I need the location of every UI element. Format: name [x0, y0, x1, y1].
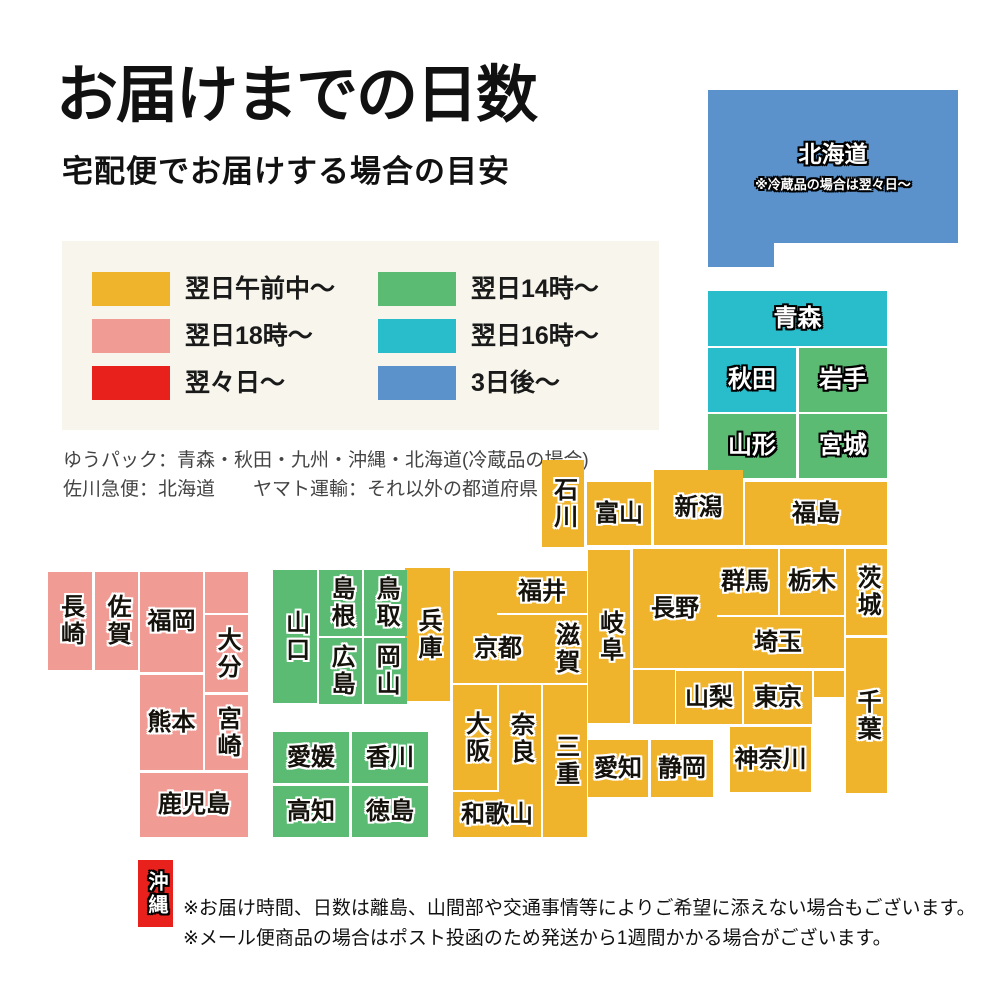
prefecture-label: 石川 [550, 477, 575, 531]
prefecture-label: 三重 [552, 734, 577, 788]
prefecture-label: 長崎 [57, 594, 82, 648]
prefecture-ehime: 愛媛 [273, 732, 349, 783]
prefecture-tokyo-ext [814, 671, 844, 697]
prefecture-nagasaki: 長崎 [48, 572, 92, 670]
prefecture-kyoto: 京都 [453, 615, 543, 683]
prefecture-note: ※冷蔵品の場合は翌々日〜 [755, 178, 911, 192]
prefecture-label: 宮城 [819, 433, 867, 458]
prefecture-label: 兵庫 [415, 608, 440, 662]
prefecture-nara: 奈良 [499, 685, 541, 793]
prefecture-label: 高知 [287, 799, 335, 824]
prefecture-label: 岩手 [819, 367, 867, 392]
prefecture-wakayama: 和歌山 [453, 792, 541, 837]
prefecture-hokkaido: 北海道※冷蔵品の場合は翌々日〜 [708, 90, 958, 243]
prefecture-fukui: 福井 [497, 571, 587, 613]
prefecture-saga: 佐賀 [95, 572, 138, 670]
japan-map: 北海道※冷蔵品の場合は翌々日〜青森秋田岩手山形宮城福島新潟富山石川群馬栃木茨城埼… [0, 0, 1000, 1000]
prefecture-hiroshima: 広島 [319, 638, 362, 704]
prefecture-gunma: 群馬 [712, 549, 778, 615]
prefecture-label: 神奈川 [735, 747, 807, 772]
prefecture-aichi: 愛知 [588, 740, 648, 797]
prefecture-yamagata: 山形 [708, 414, 796, 478]
prefecture-iwate: 岩手 [799, 348, 887, 412]
prefecture-fukuoka-ext [205, 572, 248, 613]
prefecture-label: 千葉 [854, 689, 879, 743]
prefecture-label: 群馬 [721, 569, 769, 594]
prefecture-kanagawa: 神奈川 [730, 727, 811, 792]
prefecture-label: 和歌山 [461, 802, 533, 827]
prefecture-label: 栃木 [788, 569, 836, 594]
prefecture-label: 青森 [774, 306, 822, 331]
note-mail-service: ※メール便商品の場合はポスト投函のため発送から1週間かかる場合がございます。 [183, 924, 976, 954]
prefecture-okinawa: 沖縄 [138, 860, 173, 927]
prefecture-label: 熊本 [148, 710, 196, 735]
prefecture-label: 京都 [474, 636, 522, 661]
prefecture-tochigi: 栃木 [780, 549, 844, 615]
prefecture-ishikawa: 石川 [542, 460, 584, 547]
prefecture-chiba: 千葉 [846, 638, 887, 793]
prefecture-label: 佐賀 [104, 594, 129, 648]
prefecture-osaka: 大阪 [453, 685, 497, 790]
prefecture-label: 愛媛 [287, 745, 335, 770]
prefecture-label: 沖縄 [145, 871, 166, 917]
prefecture-label: 静岡 [658, 756, 706, 781]
prefecture-label: 福岡 [148, 609, 196, 634]
prefecture-label: 宮崎 [214, 706, 239, 760]
bottom-notes: ※お届け時間、日数は離島、山間部や交通事情等によりご希望に添えない場合もございま… [183, 894, 976, 954]
prefecture-hyogo: 兵庫 [405, 568, 450, 701]
prefecture-label: 福島 [792, 501, 840, 526]
prefecture-miyagi: 宮城 [799, 414, 887, 478]
prefecture-saitama: 埼玉 [712, 617, 844, 668]
note-delivery-time: ※お届け時間、日数は離島、山間部や交通事情等によりご希望に添えない場合もございま… [183, 894, 976, 924]
prefecture-niigata: 新潟 [654, 470, 743, 545]
prefecture-label: 鳥取 [373, 576, 398, 630]
prefecture-label: 秋田 [728, 367, 776, 392]
prefecture-label: 滋賀 [552, 622, 577, 676]
prefecture-yamaguchi: 山口 [273, 570, 317, 703]
prefecture-kyoto-ext [453, 571, 497, 617]
prefecture-label: 山口 [282, 610, 307, 664]
prefecture-okayama: 岡山 [364, 638, 407, 704]
prefecture-shiga: 滋賀 [543, 615, 587, 683]
prefecture-label: 福井 [518, 579, 566, 604]
prefecture-label: 奈良 [507, 712, 532, 766]
prefecture-gifu: 岐阜 [588, 550, 630, 723]
prefecture-label: 山形 [728, 433, 776, 458]
prefecture-shimane: 島根 [319, 570, 362, 636]
prefecture-label: 大阪 [462, 711, 487, 765]
prefecture-fukuoka: 福岡 [140, 572, 203, 672]
prefecture-label: 東京 [754, 685, 802, 710]
prefecture-hokkaido-ext [708, 243, 774, 267]
prefecture-label: 北海道 [799, 142, 868, 166]
prefecture-oita: 大分 [205, 615, 248, 692]
prefecture-tottori: 鳥取 [364, 570, 407, 636]
prefecture-tokyo: 東京 [744, 671, 812, 724]
prefecture-nagano: 長野 [633, 549, 717, 668]
prefecture-label: 富山 [595, 501, 643, 526]
prefecture-label: 徳島 [366, 799, 414, 824]
prefecture-kagoshima: 鹿児島 [140, 773, 248, 837]
prefecture-mie: 三重 [543, 685, 587, 837]
prefecture-label: 島根 [328, 576, 353, 630]
prefecture-label: 香川 [366, 745, 414, 770]
prefecture-ibaraki: 茨城 [846, 549, 887, 635]
prefecture-nagano-ext [633, 670, 675, 724]
prefecture-label: 長野 [651, 596, 699, 621]
prefecture-label: 鹿児島 [158, 792, 230, 817]
prefecture-label: 新潟 [675, 495, 723, 520]
prefecture-label: 岐阜 [596, 610, 621, 664]
prefecture-tokushima: 徳島 [352, 786, 428, 837]
prefecture-kochi: 高知 [273, 786, 349, 837]
prefecture-label: 茨城 [854, 565, 879, 619]
prefecture-label: 山梨 [685, 685, 733, 710]
prefecture-kumamoto: 熊本 [140, 675, 203, 770]
prefecture-miyazaki: 宮崎 [205, 695, 248, 770]
prefecture-label: 埼玉 [754, 630, 802, 655]
prefecture-shizuoka: 静岡 [651, 740, 713, 797]
prefecture-fukushima: 福島 [745, 482, 887, 545]
prefecture-akita: 秋田 [708, 348, 796, 412]
prefecture-label: 大分 [214, 627, 239, 681]
prefecture-yamanashi: 山梨 [676, 671, 742, 724]
prefecture-label: 広島 [328, 644, 353, 698]
prefecture-label: 岡山 [373, 644, 398, 698]
prefecture-label: 愛知 [594, 756, 642, 781]
prefecture-kagawa: 香川 [352, 732, 428, 783]
prefecture-toyama: 富山 [587, 482, 651, 545]
prefecture-aomori: 青森 [708, 291, 887, 346]
